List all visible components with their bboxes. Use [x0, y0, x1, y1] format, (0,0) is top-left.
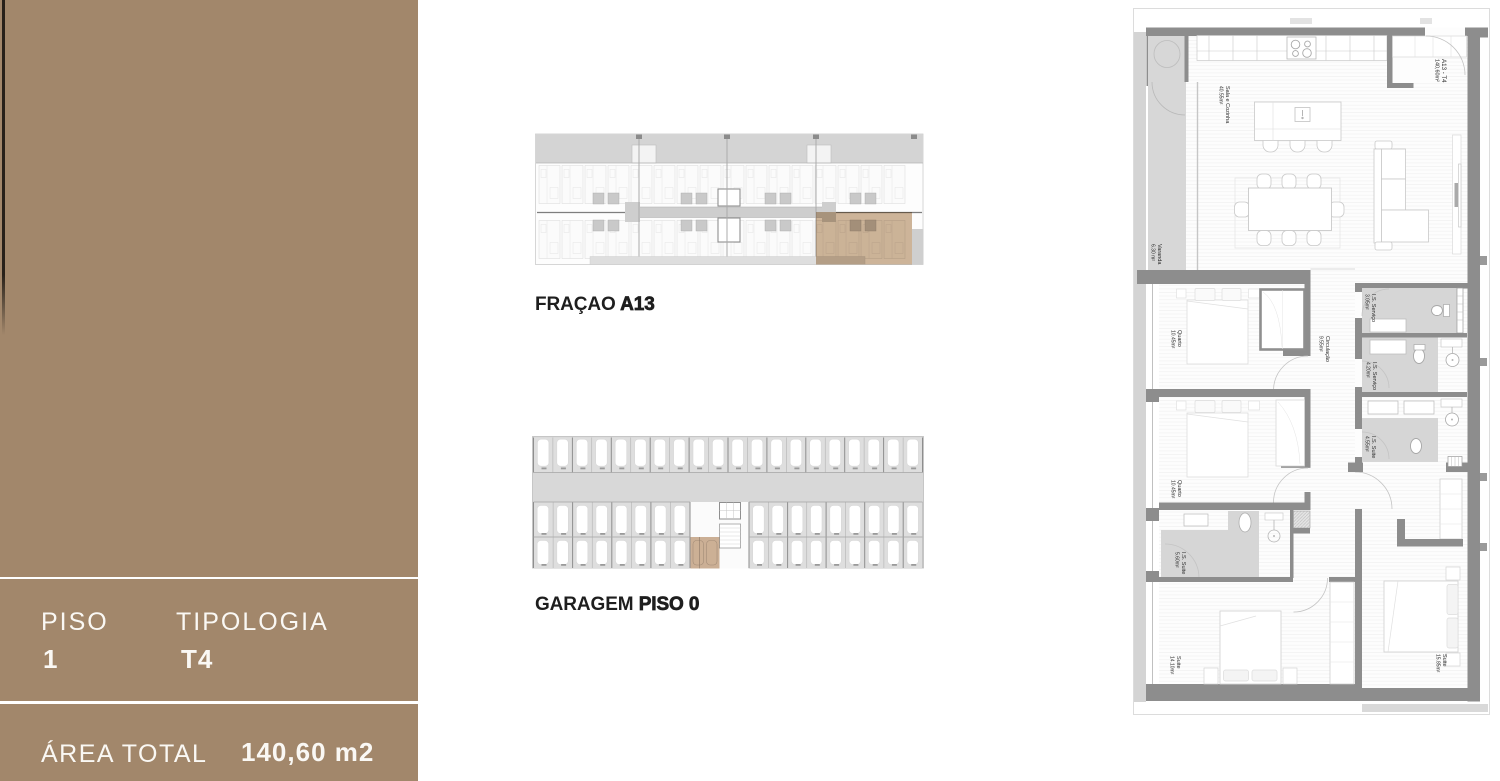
svg-text:A13 - T4140,60m²: A13 - T4140,60m² [1433, 59, 1447, 83]
svg-text:Quarto10.45m²: Quarto10.45m² [1169, 330, 1182, 349]
svg-text:Quarto10.45m²: Quarto10.45m² [1169, 480, 1182, 499]
